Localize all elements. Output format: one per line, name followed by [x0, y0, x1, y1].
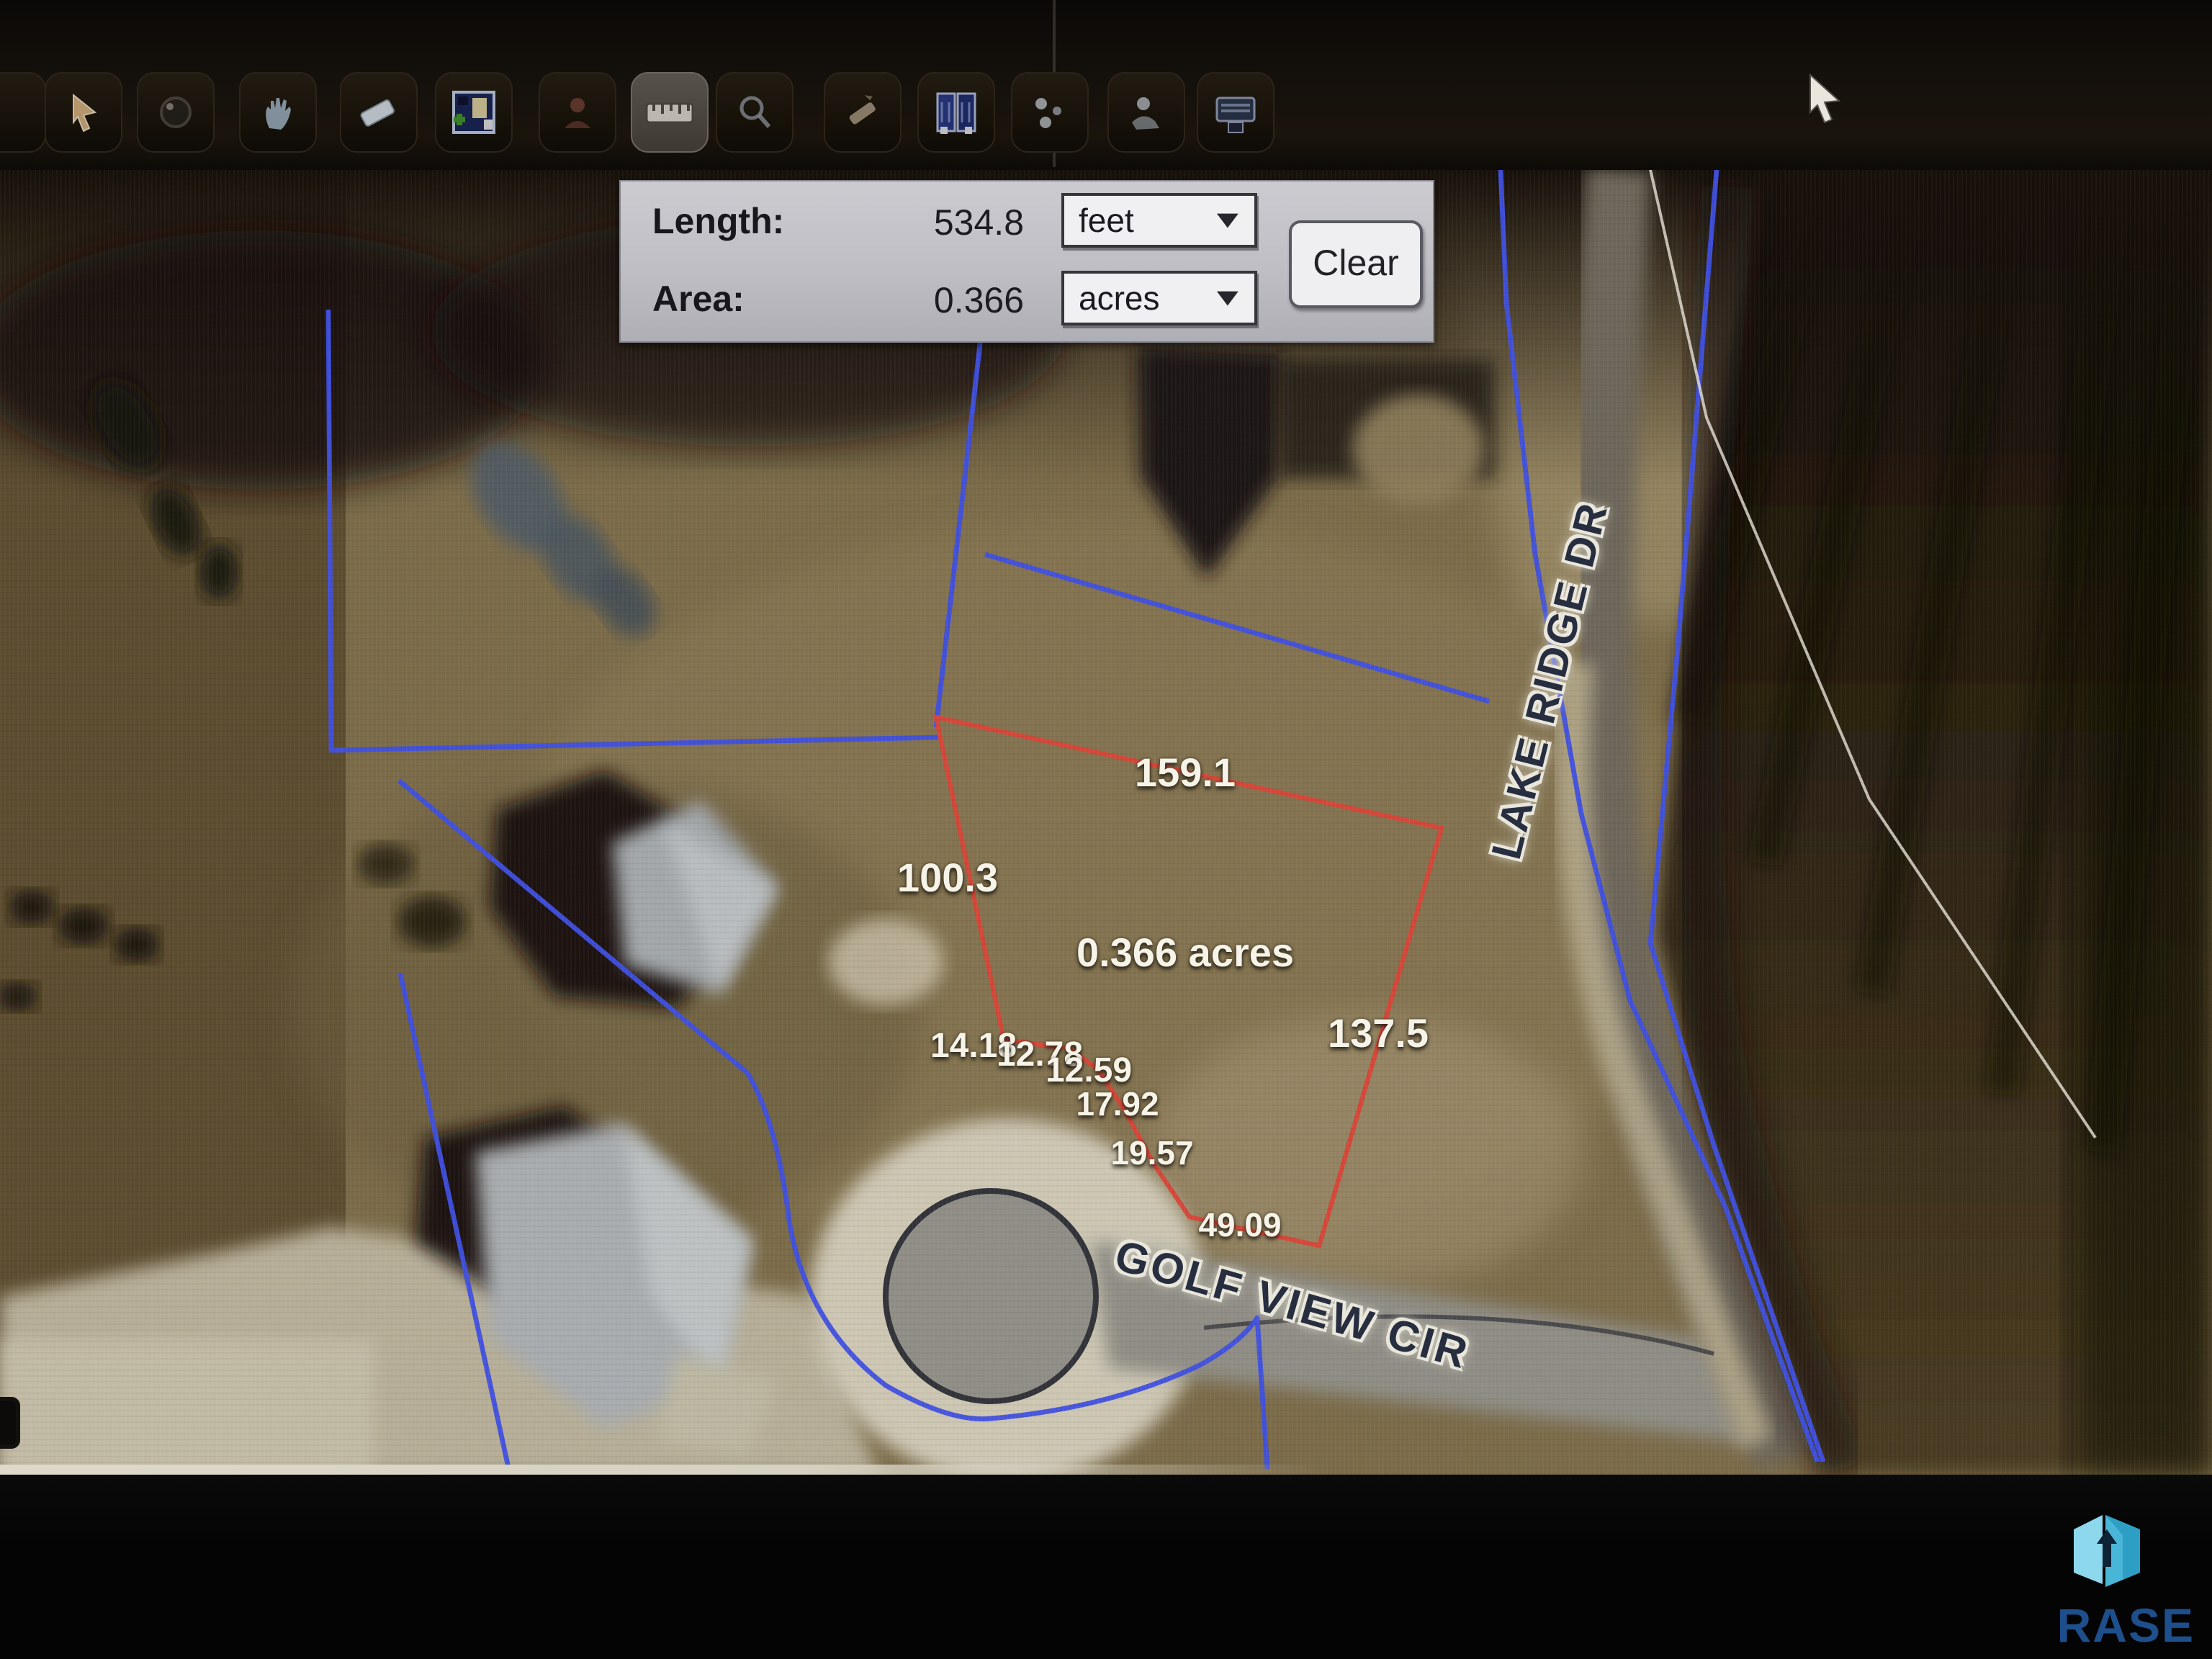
print-tool[interactable] [1197, 72, 1274, 153]
area-unit-value: acres [1079, 279, 1160, 318]
area-unit-select[interactable]: acres ▼ [1061, 271, 1257, 325]
globe-icon [154, 91, 197, 134]
points-icon [1028, 91, 1071, 134]
length-unit-value: feet [1079, 201, 1134, 240]
ruler-icon [644, 91, 696, 134]
draw-pencil-tool[interactable] [824, 72, 902, 153]
person-red-icon [556, 91, 599, 134]
eraser-icon [356, 91, 402, 134]
rase-text: RASE [2057, 1599, 2195, 1653]
area-label: 0.366 acres [1076, 930, 1294, 976]
partial-edge-icon [0, 1397, 20, 1449]
printer-icon [1211, 89, 1260, 135]
toolbar [0, 0, 2212, 170]
identify-tool[interactable] [539, 72, 616, 153]
partial-tool[interactable] [0, 72, 46, 153]
length-label: Length: [652, 202, 784, 243]
chevron-down-icon: ▼ [1210, 206, 1246, 235]
profile-person-tool[interactable] [1107, 72, 1185, 153]
screen-photo: 159.1 100.3 0.366 acres 137.5 14.18 12.7… [0, 0, 2212, 1659]
pencil-icon [841, 91, 884, 134]
area-value: 0.366 [851, 281, 1024, 323]
eraser-tool[interactable] [340, 72, 418, 153]
layers-book-icon [932, 88, 981, 137]
cursor-arrow-icon [62, 91, 105, 134]
clear-button[interactable]: Clear [1289, 220, 1423, 308]
chevron-down-icon: ▼ [1210, 284, 1246, 313]
add-map-icon [449, 88, 498, 137]
add-map-view-tool[interactable] [435, 72, 513, 153]
area-label-panel: Area: [652, 279, 745, 321]
measurement-panel: Length: 534.8 feet ▼ Area: 0.366 acres ▼… [619, 180, 1434, 343]
map-canvas[interactable]: 159.1 100.3 0.366 acres 137.5 14.18 12.7… [0, 170, 2212, 1475]
pan-hand-tool[interactable] [239, 72, 317, 153]
segment-label-19-57: 19.57 [1110, 1134, 1193, 1173]
zoom-globe-tool[interactable] [137, 72, 215, 153]
markup-points-tool[interactable] [1011, 72, 1089, 153]
search-magnifier-tool[interactable] [716, 72, 793, 153]
magnifier-icon [733, 91, 776, 134]
aerial-imagery [0, 170, 2212, 1475]
segment-label-137-5: 137.5 [1328, 1011, 1429, 1057]
layers-book-tool[interactable] [917, 72, 995, 153]
profile-person-icon [1125, 91, 1168, 134]
hand-icon [256, 91, 300, 134]
box-arrow-logo-icon [2062, 1512, 2152, 1596]
measure-ruler-tool[interactable] [631, 72, 709, 153]
length-unit-select[interactable]: feet ▼ [1061, 193, 1257, 248]
segment-label-49-09: 49.09 [1198, 1206, 1281, 1245]
segment-label-100-3: 100.3 [897, 855, 998, 902]
select-cursor-tool[interactable] [45, 72, 122, 153]
rase-watermark: RASE [2013, 1512, 2200, 1650]
monitor-bezel [0, 1475, 2212, 1659]
segment-label-17-92: 17.92 [1076, 1085, 1159, 1124]
segment-label-159-1: 159.1 [1135, 750, 1236, 796]
length-value: 534.8 [851, 203, 1024, 245]
